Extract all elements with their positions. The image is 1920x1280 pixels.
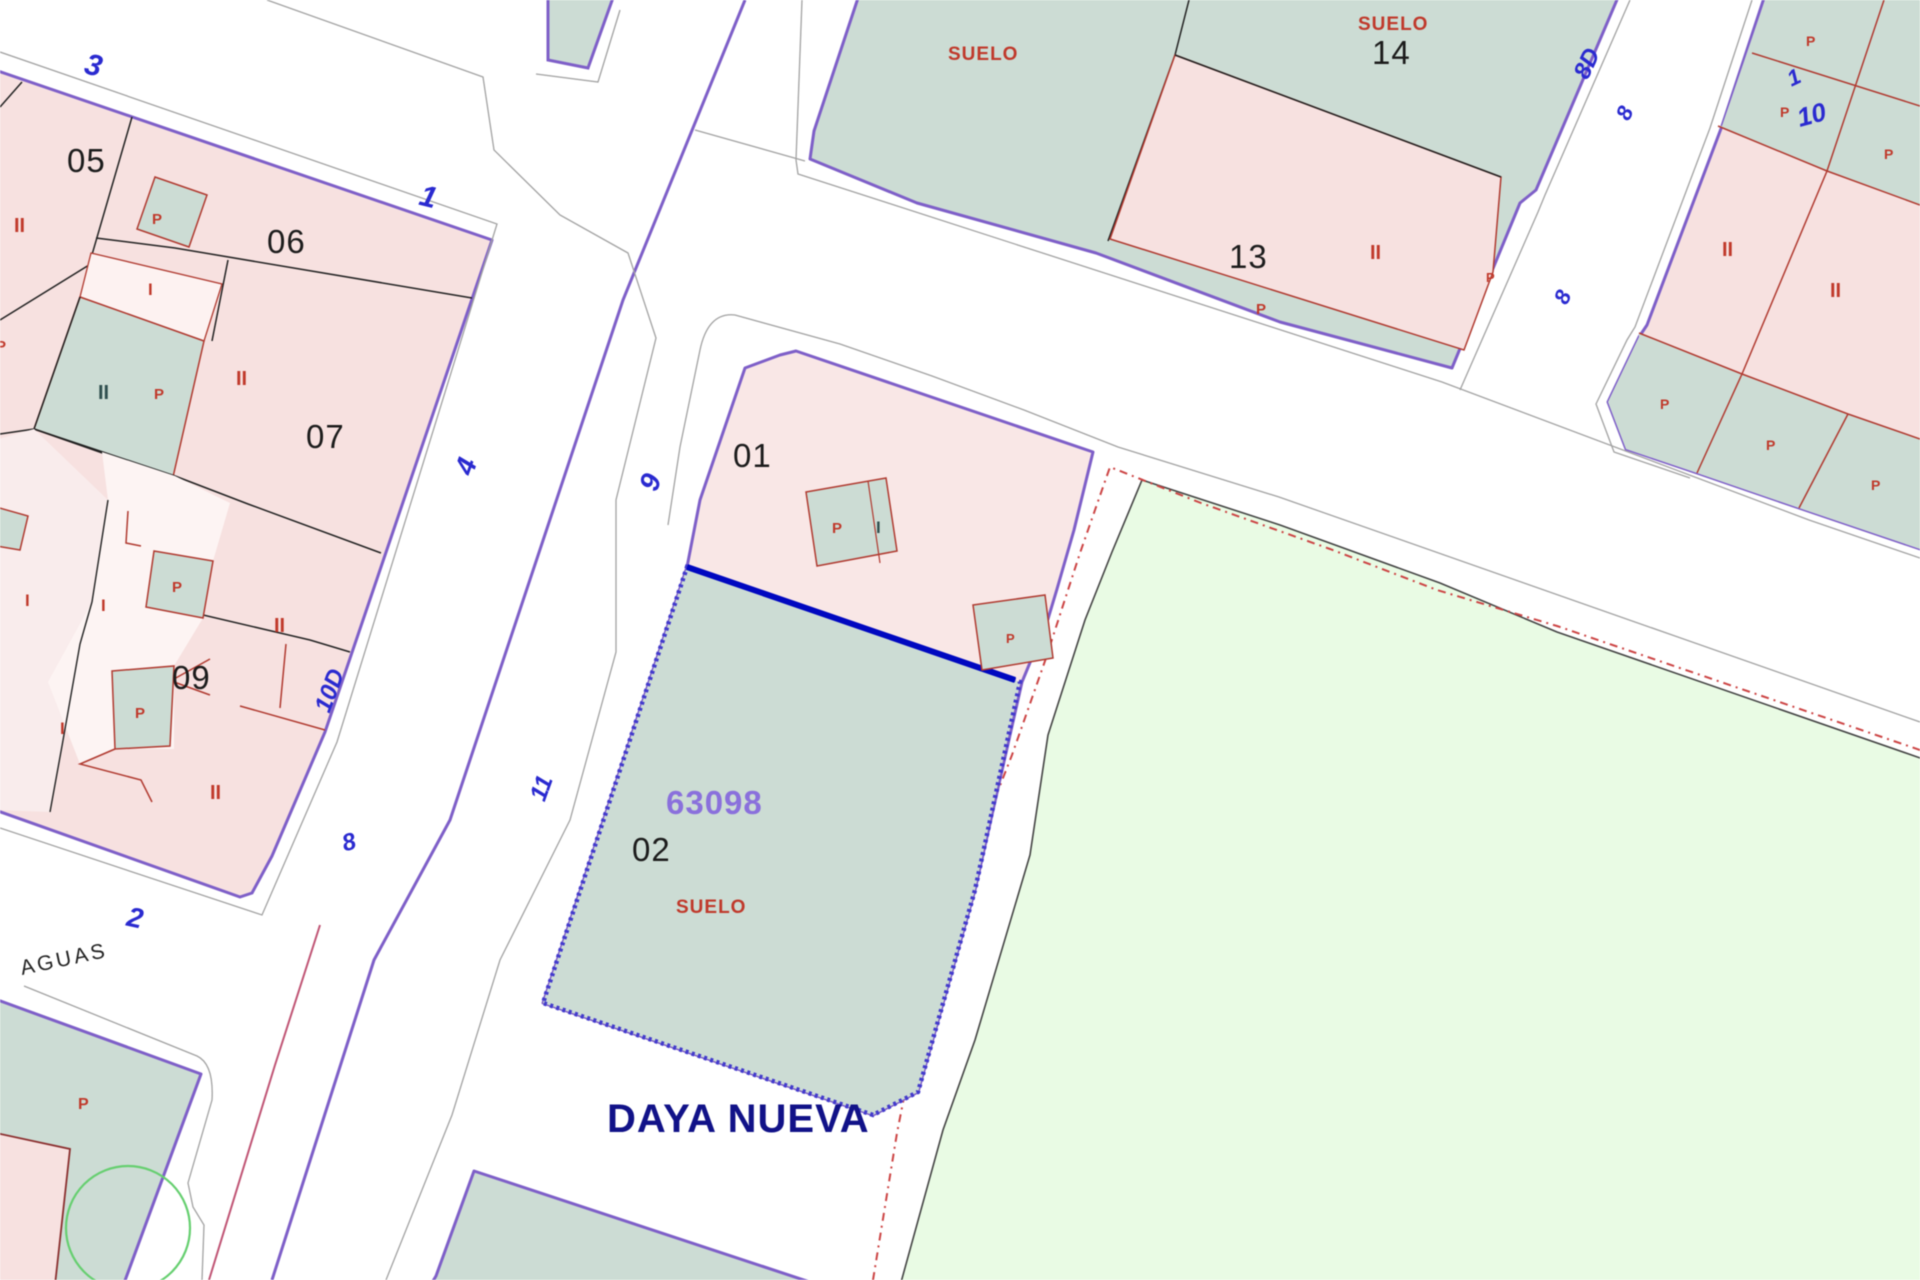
svg-text:II: II xyxy=(98,382,109,404)
svg-text:I: I xyxy=(876,518,881,537)
svg-text:P: P xyxy=(1806,33,1815,49)
svg-text:05: 05 xyxy=(67,142,106,179)
svg-text:01: 01 xyxy=(733,437,772,474)
svg-text:II: II xyxy=(1722,239,1733,261)
svg-text:P: P xyxy=(1780,104,1789,120)
svg-text:DAYA NUEVA: DAYA NUEVA xyxy=(607,1097,870,1141)
svg-text:I: I xyxy=(148,280,153,299)
svg-text:P: P xyxy=(1660,396,1669,412)
svg-text:63098: 63098 xyxy=(666,784,763,821)
svg-text:P: P xyxy=(1006,631,1015,646)
svg-text:P: P xyxy=(1884,146,1893,162)
svg-text:13: 13 xyxy=(1229,238,1268,275)
svg-text:I: I xyxy=(60,719,65,738)
svg-text:P: P xyxy=(152,211,162,228)
svg-text:SUELO: SUELO xyxy=(676,897,746,918)
svg-text:SUELO: SUELO xyxy=(1358,14,1428,35)
svg-text:II: II xyxy=(236,368,247,390)
svg-text:P: P xyxy=(78,1096,89,1113)
svg-text:I: I xyxy=(25,591,30,610)
svg-text:14: 14 xyxy=(1372,34,1411,71)
svg-text:P: P xyxy=(1486,270,1495,285)
svg-text:02: 02 xyxy=(632,831,671,868)
svg-text:II: II xyxy=(210,782,221,804)
svg-text:P: P xyxy=(832,520,842,537)
svg-text:SUELO: SUELO xyxy=(948,44,1018,65)
svg-text:P: P xyxy=(0,338,6,355)
svg-text:II: II xyxy=(1830,280,1841,302)
svg-text:P: P xyxy=(172,579,182,596)
svg-text:P: P xyxy=(135,705,145,722)
svg-text:07: 07 xyxy=(306,418,345,455)
svg-text:06: 06 xyxy=(267,223,306,260)
svg-text:II: II xyxy=(274,615,285,637)
svg-text:P: P xyxy=(1256,301,1266,318)
svg-text:II: II xyxy=(1370,242,1381,264)
svg-text:P: P xyxy=(1871,477,1880,493)
svg-text:P: P xyxy=(154,386,164,403)
svg-text:I: I xyxy=(101,596,106,615)
svg-text:P: P xyxy=(1766,437,1775,453)
svg-text:09: 09 xyxy=(172,659,211,696)
svg-text:II: II xyxy=(14,215,25,237)
